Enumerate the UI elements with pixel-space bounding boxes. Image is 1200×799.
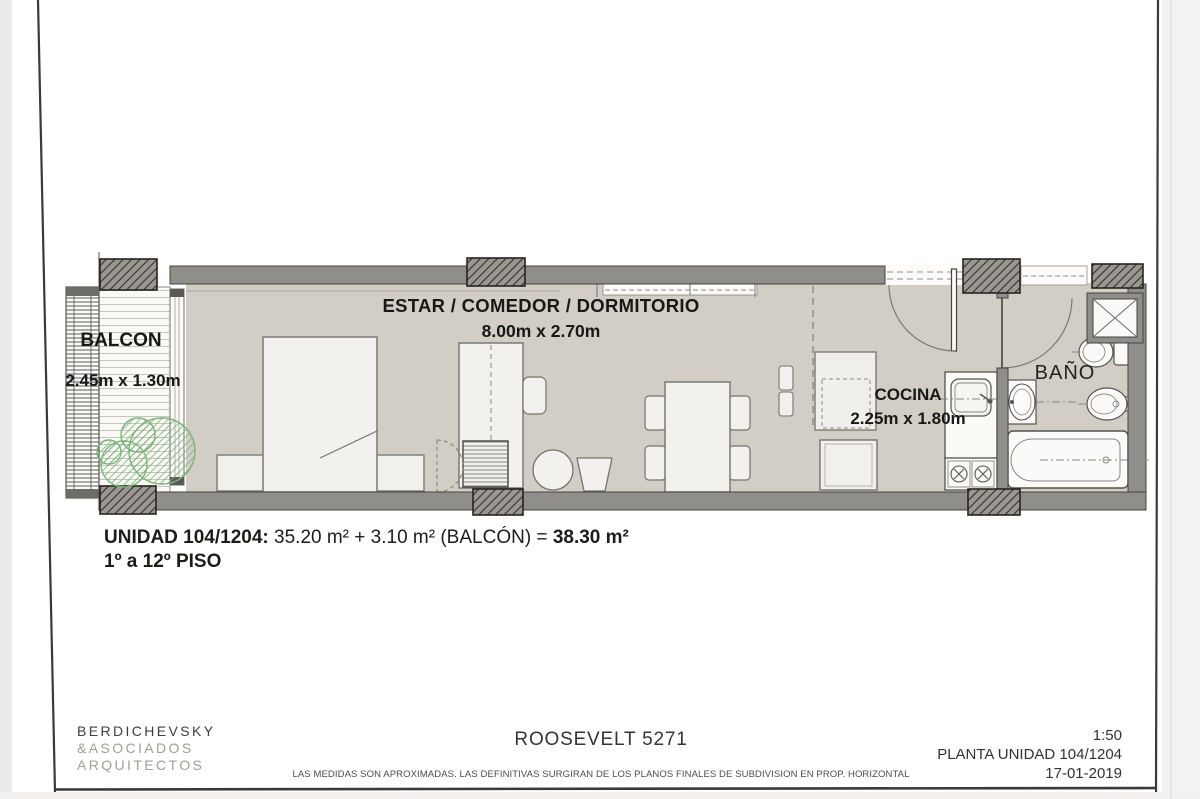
kitchen-label: COCINA (838, 385, 978, 405)
desk-chair (523, 377, 546, 414)
sheet-name: PLANTA UNIDAD 104/1204 (918, 745, 1122, 764)
floors-range: 1º a 12º PISO (104, 551, 221, 573)
ventilation-shaft (1087, 293, 1143, 343)
living-room-dimensions: 8.00m x 2.70m (441, 321, 641, 342)
unit-area-formula: 35.20 m² + 3.10 m² (BALCÓN) = (274, 527, 548, 548)
project-name: ROOSEVELT 5271 (450, 729, 752, 751)
unit-number: UNIDAD 104/1204: (104, 527, 269, 548)
drawing-date: 17-01-2019 (918, 764, 1122, 783)
unit-area-total: 38.30 m² (553, 527, 629, 548)
living-room-label: ESTAR / COMEDOR / DORMITORIO (371, 295, 711, 317)
kitchen-dimensions: 2.25m x 1.80m (838, 409, 978, 429)
plan-sheet: ESTAR / COMEDOR / DORMITORIO 8.00m x 2.7… (0, 0, 1200, 799)
stove (945, 458, 997, 490)
measurements-disclaimer: LAS MEDIDAS SON APROXIMADAS. LAS DEFINIT… (250, 769, 952, 780)
unit-area-summary: UNIDAD 104/1204: 35.20 m² + 3.10 m² (BAL… (104, 527, 629, 549)
firm-associates: &ASOCIADOS (77, 740, 216, 757)
titleblock-info: 1:50 PLANTA UNIDAD 104/1204 17-01-2019 (918, 726, 1122, 783)
hall-opening (1021, 266, 1087, 285)
floor-plan-drawing (0, 0, 1200, 799)
drawing-scale: 1:50 (918, 726, 1122, 745)
bathroom-label: BAÑO (1013, 362, 1117, 385)
pouf-table (533, 450, 573, 490)
firm-architects: ARQUITECTOS (77, 757, 216, 774)
balcony-label: BALCON (58, 330, 184, 352)
firm-name: BERDICHEVSKY (77, 723, 216, 740)
bed (263, 337, 377, 492)
balcony-dimensions: 2.45m x 1.30m (52, 371, 194, 391)
fridge (820, 440, 877, 490)
architect-firm: BERDICHEVSKY &ASOCIADOS ARQUITECTOS (77, 723, 216, 774)
